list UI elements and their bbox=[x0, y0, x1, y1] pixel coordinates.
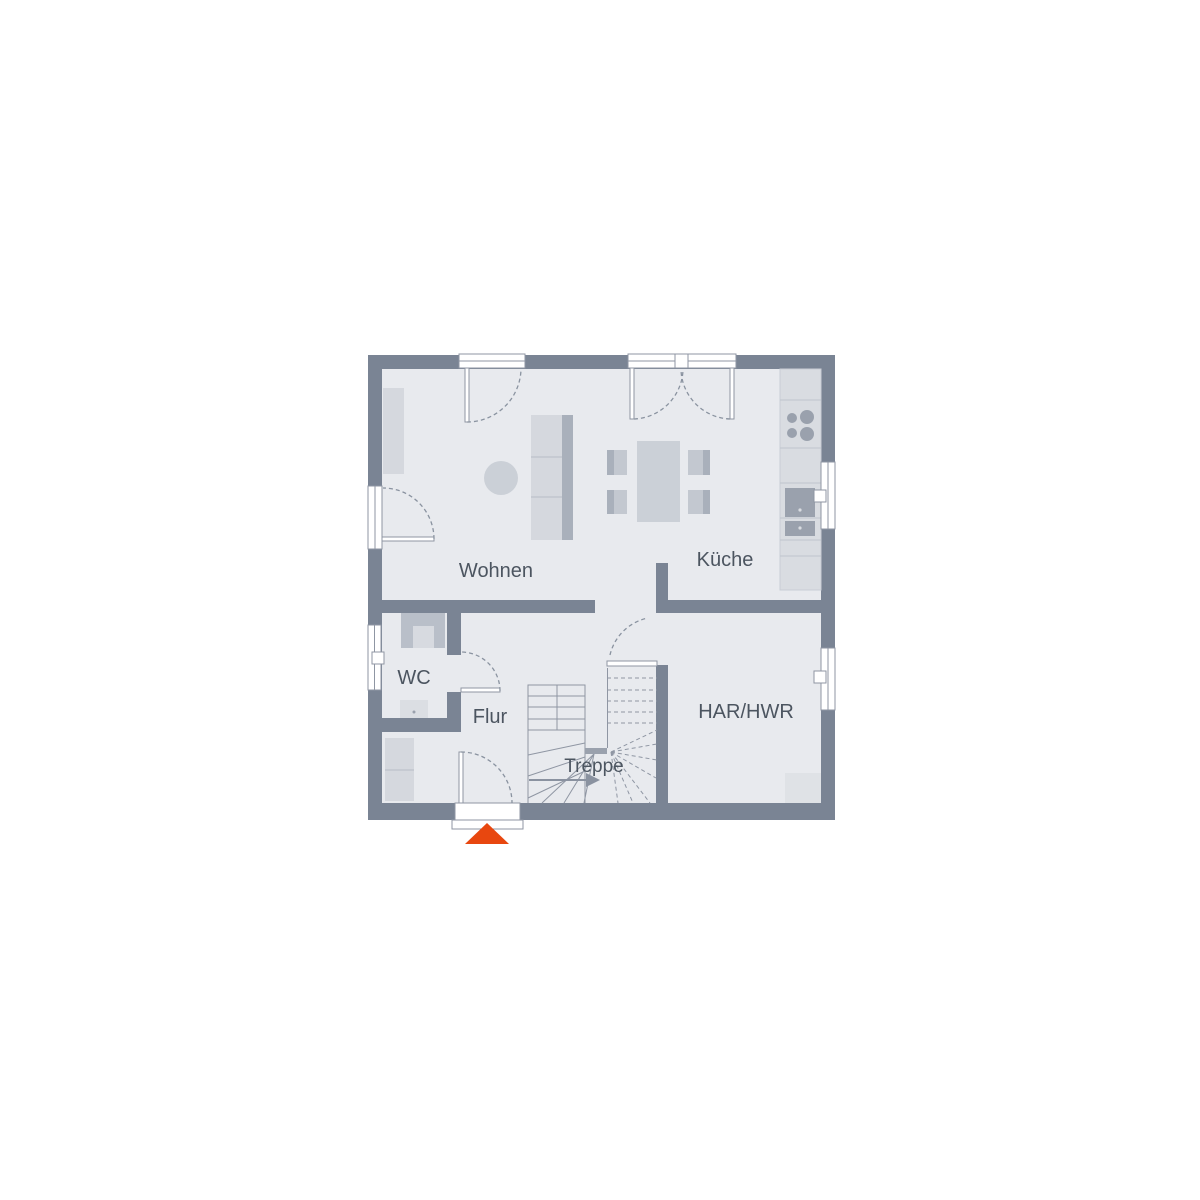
door-leaf-left bbox=[630, 368, 634, 419]
wall-wc-lower bbox=[447, 692, 461, 718]
coffee-table bbox=[484, 461, 518, 495]
wall-kueche-har bbox=[656, 600, 821, 613]
toilet-dot bbox=[413, 711, 416, 714]
dishwasher-dot bbox=[798, 526, 801, 529]
door-leaf-right bbox=[730, 368, 734, 419]
door-leaf-stairtop bbox=[607, 661, 657, 666]
wall-wc-bottom bbox=[382, 718, 461, 732]
chair-backrest bbox=[703, 450, 710, 475]
oven bbox=[785, 488, 815, 517]
utility-equipment bbox=[785, 773, 821, 803]
room-label-wohnen: Wohnen bbox=[459, 560, 533, 582]
sideboard bbox=[383, 388, 404, 474]
door-center-post bbox=[675, 354, 688, 368]
room-label-wc: WC bbox=[397, 667, 430, 689]
door-leaf-entrance bbox=[459, 752, 463, 803]
wall-wc-upper bbox=[447, 600, 461, 655]
floorplan-drawing: Wohnen Küche WC Flur Treppe HAR/HWR bbox=[0, 0, 1200, 1200]
wall-wohnen-flur bbox=[382, 600, 595, 613]
window-handle bbox=[372, 652, 384, 664]
wc-sink-basin bbox=[413, 626, 434, 648]
room-label-flur: Flur bbox=[473, 706, 508, 728]
chair-backrest bbox=[703, 490, 710, 514]
door-leaf-top-wohnen bbox=[465, 368, 469, 422]
door-leaf-left-wohnen bbox=[382, 537, 434, 541]
kitchen-counter bbox=[780, 369, 821, 590]
window-handle bbox=[814, 490, 826, 502]
room-label-har-hwr: HAR/HWR bbox=[698, 701, 794, 723]
wall-stairs-har bbox=[656, 665, 668, 803]
entrance-door-opening bbox=[455, 803, 520, 820]
sofa-backrest bbox=[562, 415, 573, 540]
stair-landing-edge bbox=[585, 748, 607, 754]
room-label-kueche: Küche bbox=[697, 549, 754, 571]
room-label-treppe: Treppe bbox=[564, 756, 624, 777]
floorplan-page: Wohnen Küche WC Flur Treppe HAR/HWR bbox=[0, 0, 1200, 1200]
door-leaf-wc bbox=[461, 688, 500, 692]
chair-backrest bbox=[607, 450, 614, 475]
window-handle bbox=[814, 671, 826, 683]
dining-table bbox=[637, 441, 680, 522]
oven-handle-dot bbox=[798, 508, 801, 511]
toilet bbox=[400, 700, 428, 718]
chair-backrest bbox=[607, 490, 614, 514]
sofa-seat bbox=[531, 415, 562, 540]
floor-area bbox=[382, 369, 821, 803]
